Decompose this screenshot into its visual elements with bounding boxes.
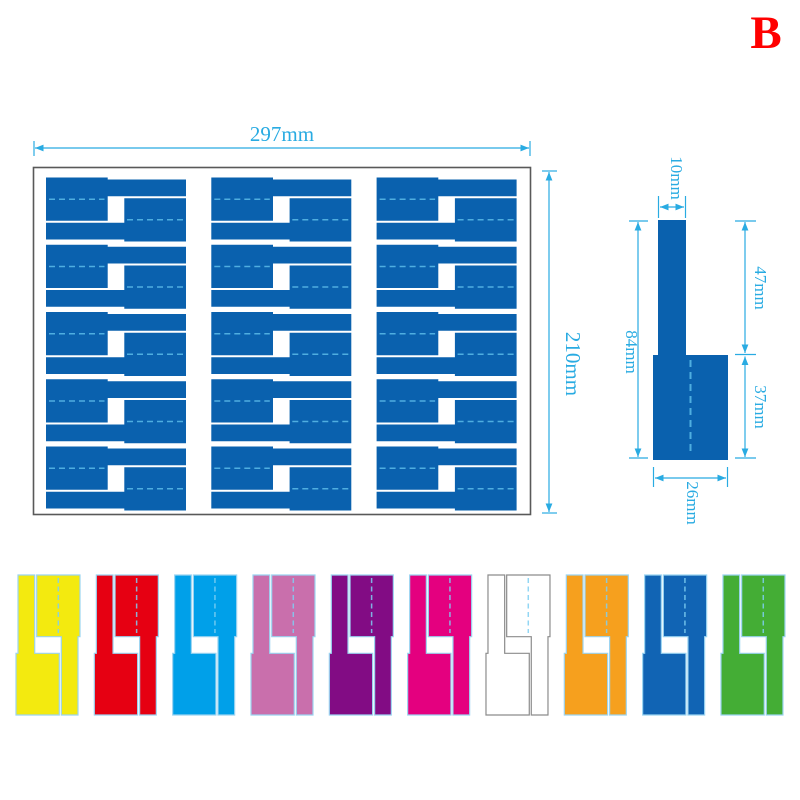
color-sample-orange (564, 575, 628, 715)
total-length-label: 84mm (622, 330, 641, 373)
single-label-diagram: 84mm 10mm 47mm 37mm 26mm (622, 156, 770, 524)
color-sample-green (721, 575, 785, 715)
variant-letter: B (750, 7, 781, 59)
dimension-total-length: 84mm (622, 221, 648, 458)
color-sample-row (16, 575, 785, 715)
base-width-label: 26mm (683, 481, 702, 524)
color-sample-purple (329, 575, 393, 715)
base-length-label: 37mm (751, 385, 770, 428)
label-stem (658, 220, 686, 356)
color-sample-yellow (16, 575, 80, 715)
sheet-width-label: 297mm (250, 122, 314, 146)
dimension-stem-width: 10mm (659, 156, 687, 218)
color-sample-red (94, 575, 158, 715)
color-sample-orchid (251, 575, 315, 715)
color-sample-white (486, 575, 550, 715)
sheet-height-label: 210mm (561, 332, 585, 396)
color-sample-blue (643, 575, 707, 715)
color-sample-sky-blue (173, 575, 237, 715)
dimension-stem-length: 47mm (735, 221, 770, 355)
product-image: 297mm 210mm 84mm 10mm 47mm (0, 0, 800, 800)
product-diagram-canvas: 297mm 210mm 84mm 10mm 47mm (0, 0, 800, 800)
dimension-base-length: 37mm (735, 357, 770, 459)
dimension-sheet-width: 297mm (34, 122, 530, 156)
stem-length-label: 47mm (751, 266, 770, 309)
color-sample-magenta (408, 575, 472, 715)
dimension-sheet-height: 210mm (542, 171, 585, 513)
sheet-diagram (34, 168, 531, 515)
dimension-base-width: 26mm (654, 467, 728, 525)
stem-width-label: 10mm (667, 156, 686, 199)
